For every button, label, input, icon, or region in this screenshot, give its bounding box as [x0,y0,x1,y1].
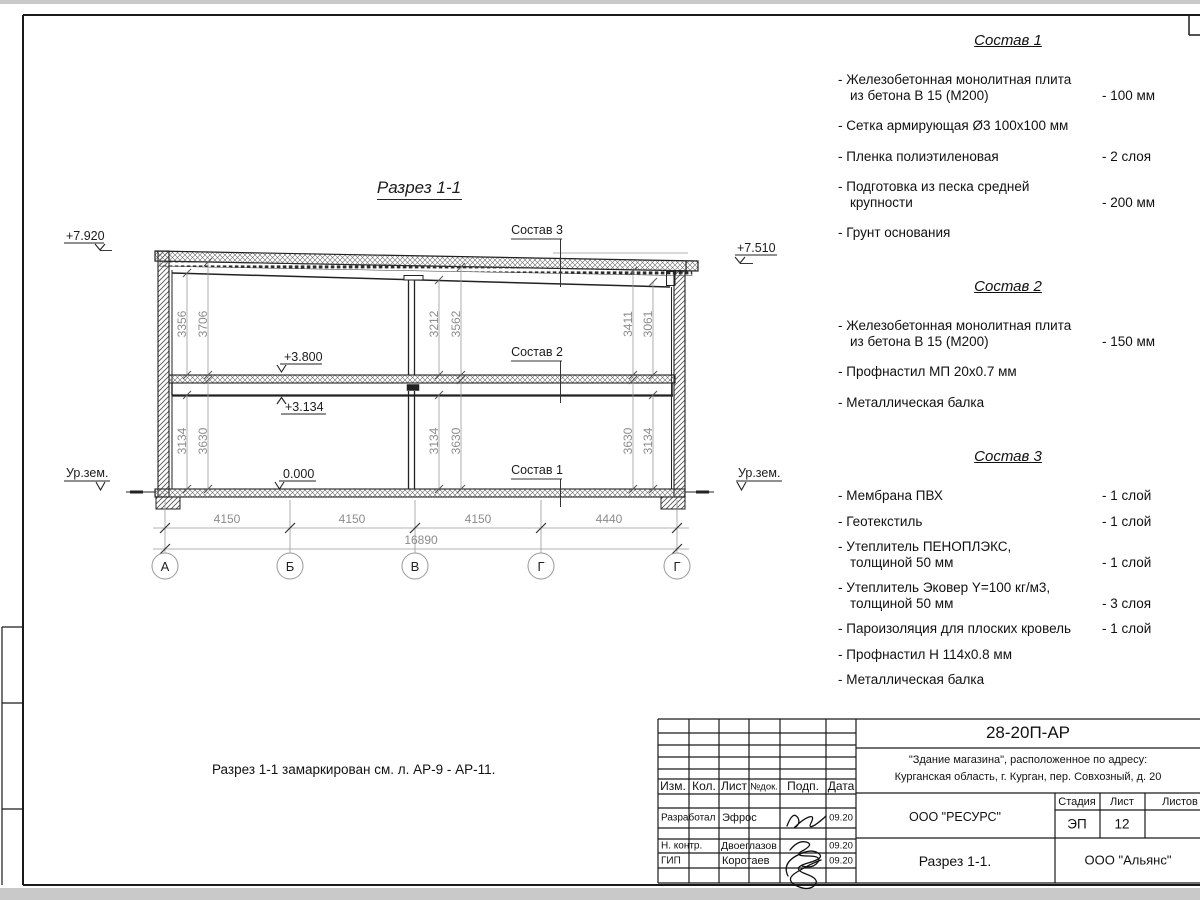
axis-markers: А Б В Г Г [152,553,690,579]
composition-item: - Профнастил МП 20х0.7 мм [838,364,1105,380]
ground-level-label: Ур.зем. [66,466,108,480]
composition-list-3: Состав 3 - Мембрана ПВХ- 1 слой - Геотек… [838,446,1200,698]
dim-label: 3630 [621,427,635,454]
composition-item: - Металлическая балка [838,395,1105,411]
elevation-label: +7.920 [66,229,105,243]
elevation-label: +3.800 [284,350,323,364]
composition-item: - Мембрана ПВХ- 1 слой [838,488,1105,504]
layer-thickness: - 200 мм [1102,195,1155,211]
col-header-izm: Изм. [660,779,686,793]
elevation-label: 0.000 [283,467,314,481]
frame-left-cells [2,627,23,885]
axis-label: А [161,559,170,574]
layer-ref-label: Состав 2 [511,345,563,359]
row-role: Разработал [661,813,715,824]
drawing-title: Разрез 1-1 [377,178,461,197]
walls [158,251,685,497]
composition-item: - Металлическая балка [838,672,1105,688]
elevation-label: +3.134 [285,400,324,414]
row-role: ГИП [661,856,681,867]
composition-item: - Подготовка из песка средней крупности-… [838,179,1105,210]
dim-label: 3411 [621,311,635,337]
composition-title: Состав 3 [838,446,1178,468]
composition-item: - Пароизоляция для плоских кровель- 1 сл… [838,621,1105,637]
dim-label: 3061 [641,310,655,337]
dim-label: 4440 [596,512,623,526]
signatures [786,815,826,888]
company-name: ООО "Альянс" [1085,853,1172,868]
dim-label: 3706 [196,310,210,337]
drawing-sheet-page: { "drawing": { "title": "Разрез 1-1", "n… [0,0,1200,900]
col-header-podp: Подп. [787,779,819,793]
dim-label: 3212 [427,310,441,337]
drawing-title-group: Разрез 1-1 [377,178,462,200]
row-name: Двоеглазов [721,840,777,852]
row-date: 09.20 [829,841,853,852]
dim-label: 3134 [427,427,441,454]
dim-label: 4150 [214,512,241,526]
axis-label: Г [537,559,544,574]
layer-thickness: - 100 мм [1102,88,1155,104]
composition-list-2: Состав 2 - Железобетонная монолитная пли… [838,276,1200,425]
row-name: Эфрос [722,812,757,824]
object-description-line2: Курганская область, г. Курган, пер. Совх… [895,771,1162,783]
composition-item: - Грунт основания [838,225,1105,241]
layer-thickness: - 1 слой [1102,621,1151,637]
stage-header: Стадия [1058,796,1096,808]
composition-item: - Профнастил Н 114х0.8 мм [838,647,1105,663]
layer-thickness: - 1 слой [1102,488,1151,504]
layer-thickness: - 2 слоя [1102,149,1151,165]
composition-item: - Железобетонная монолитная плита из бет… [838,318,1105,349]
col-header-kol: Кол. [692,779,716,793]
col-header-list: Лист [721,779,747,793]
composition-item: - Сетка армирующая Ø3 100х100 мм [838,118,1105,134]
layer-thickness: - 3 слоя [1102,596,1151,612]
dim-total-label: 16890 [404,533,438,547]
sheets-header: Листов [1162,796,1198,808]
axis-label: Б [286,559,295,574]
stage-value: ЭП [1067,817,1086,832]
elevation-label: +7.510 [737,241,776,255]
axis-label: В [411,559,420,574]
composition-item: - Геотекстиль- 1 слой [838,514,1105,530]
dim-label: 3630 [196,427,210,454]
dim-label: 3356 [175,310,189,337]
composition-item: - Утеплитель ПЕНОПЛЭКС, толщиной 50 мм- … [838,539,1105,570]
sheet-title: Разрез 1-1. [919,853,992,869]
row-role: Н. контр. [661,841,702,852]
composition-item: - Пленка полиэтиленовая- 2 слоя [838,149,1105,165]
ground-level-label: Ур.зем. [738,466,780,480]
roof [155,251,698,287]
row-name: Коротаев [722,855,770,867]
dim-label: 3562 [449,310,463,337]
layer-thickness: - 1 слой [1102,514,1151,530]
layer-ref-label: Состав 1 [511,463,563,477]
col-header-ndoc: №док. [750,782,778,793]
signature-scribble [787,815,826,828]
composition-title: Состав 1 [838,30,1178,52]
bottom-dimensions: 4150 4150 4150 4440 16890 [153,500,689,554]
layer-thickness: - 1 слой [1102,555,1151,571]
row-date: 09.20 [829,856,853,867]
axis-label: Г [673,559,680,574]
layer-thickness: - 150 мм [1102,334,1155,350]
drawing-note: Разрез 1-1 замаркирован см. л. АР-9 - АР… [212,762,495,777]
object-description-line1: "Здание магазина", расположенное по адре… [909,754,1147,766]
col-header-data: Дата [828,779,855,793]
sheet-number: 12 [1114,817,1129,832]
document-code: 28-20П-АР [986,723,1070,743]
dim-label: 3134 [641,427,655,454]
layer-ref-label: Состав 3 [511,223,563,237]
dim-label: 3630 [449,427,463,454]
composition-item: - Железобетонная монолитная плита из бет… [838,72,1105,103]
composition-title: Состав 2 [838,276,1178,298]
dim-label: 4150 [339,512,366,526]
dim-label: 3134 [175,427,189,454]
composition-list-1: Состав 1 - Железобетонная монолитная пли… [838,30,1200,256]
dim-label: 4150 [465,512,492,526]
row-date: 09.20 [829,813,853,824]
composition-item: - Утеплитель Эковер Y=100 кг/м3, толщино… [838,580,1105,611]
design-org: ООО "РЕСУРС" [909,810,1001,824]
sheet-header: Лист [1110,796,1134,808]
